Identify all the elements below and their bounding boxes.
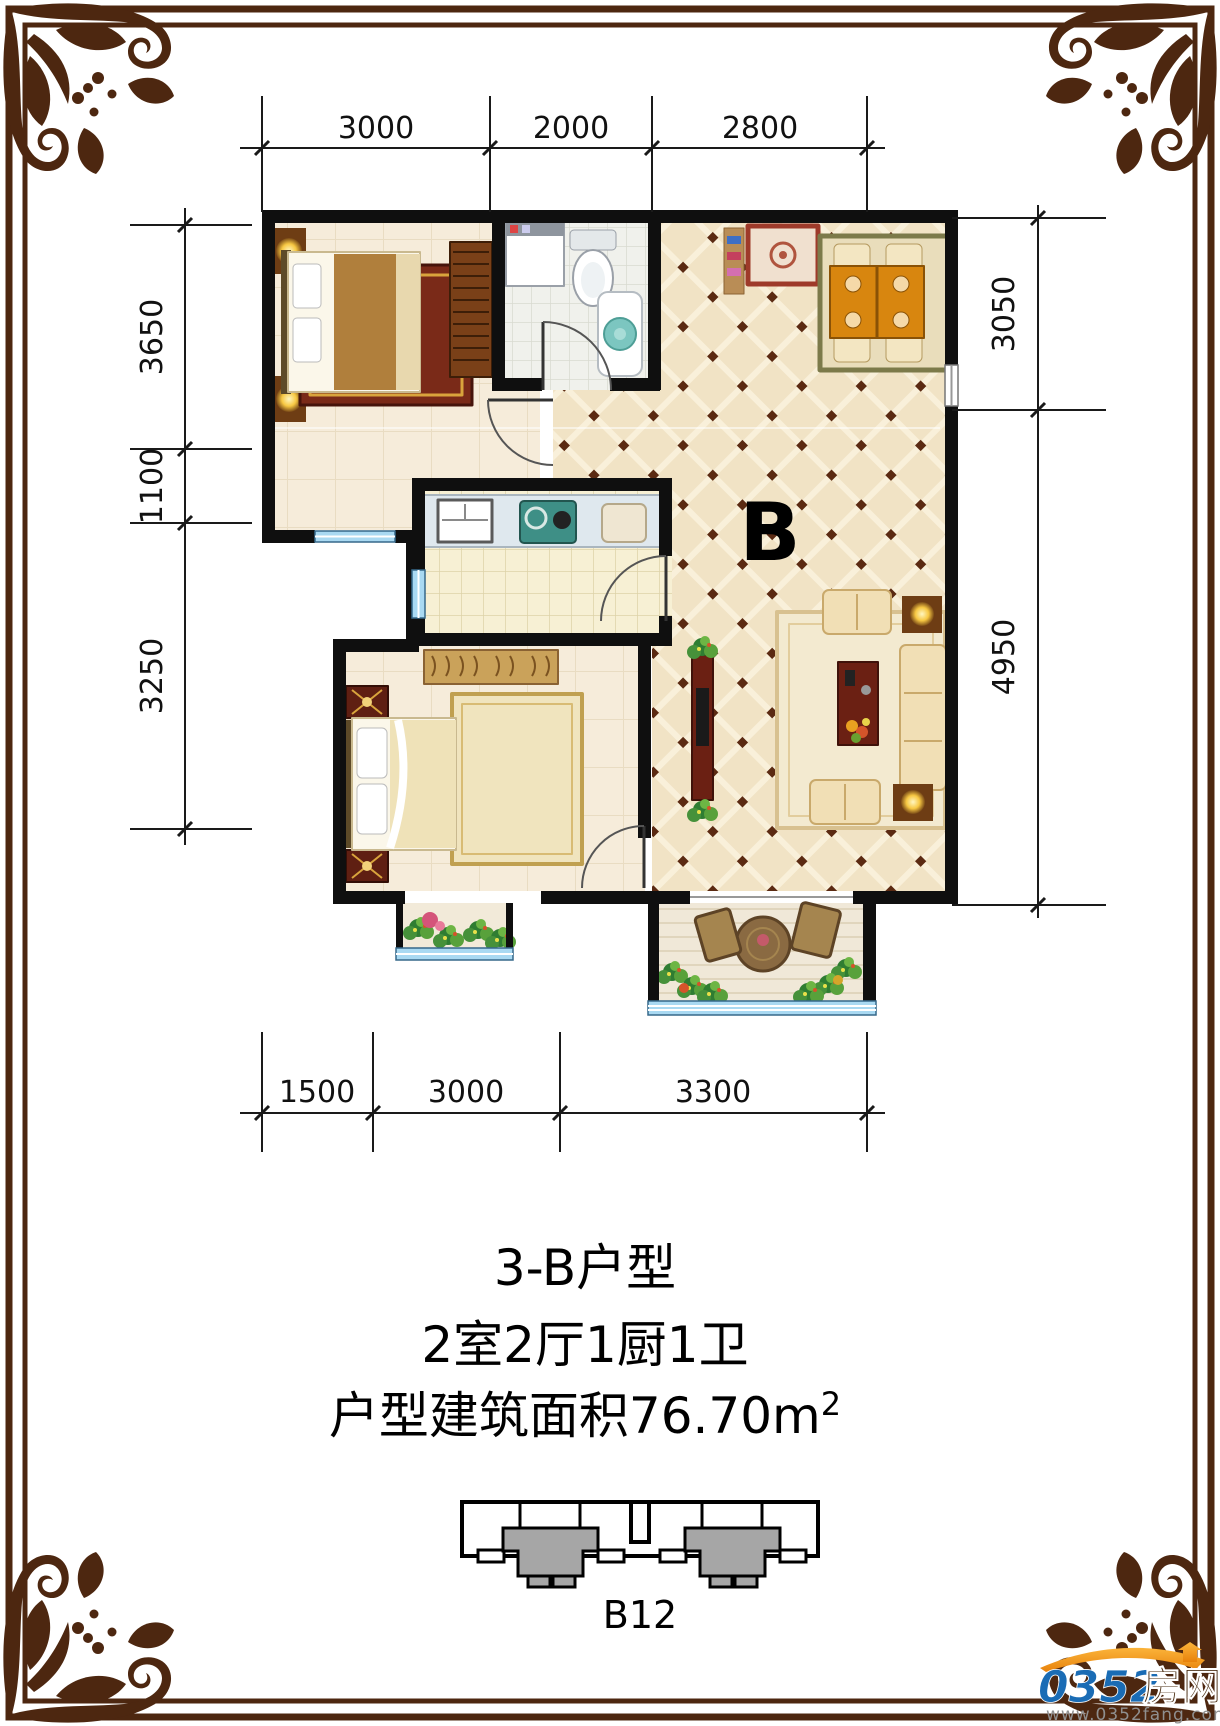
unit-type-title: 3-B户型: [494, 1239, 676, 1297]
dining-set: [820, 236, 948, 370]
bedroom2-bed: [344, 718, 456, 850]
bedroom1-bed: [281, 250, 420, 394]
logo-cn: 房网: [1142, 1664, 1220, 1710]
room-count-subtitle: 2室2厅1厨1卫: [421, 1316, 748, 1374]
dim-label: 2800: [722, 111, 798, 146]
dim-label: 3650: [135, 299, 170, 375]
title-block: 3-B户型 2室2厅1厨1卫 户型建筑面积76.70m2: [329, 1239, 841, 1445]
key-plan-label: B12: [603, 1593, 677, 1637]
bedroom2-rug: [452, 694, 582, 864]
corner-flourish-bottom-left: [3, 1552, 174, 1723]
site-logo: 0352 房网 www.0352fang.com: [1038, 1642, 1220, 1725]
bedroom1-wardrobe: [450, 242, 492, 377]
doormat-rug: [748, 226, 818, 284]
dining-window: [945, 365, 958, 406]
sofa-right: [900, 645, 946, 790]
coffee-table: [838, 662, 878, 745]
logo-url: www.0352fang.com: [1046, 1705, 1220, 1725]
balcony-window: [648, 1001, 876, 1015]
kitchen-window: [412, 570, 425, 618]
dim-label: 3000: [338, 111, 414, 146]
key-stair-notch: [631, 1502, 649, 1542]
tv-cabinet: [692, 655, 713, 800]
dim-label: 2000: [533, 111, 609, 146]
kitchen-counter: [424, 495, 660, 547]
floorplan-canvas: B 3000: [0, 0, 1220, 1726]
bedroom2-bench: [424, 650, 558, 684]
corridor-floor: [553, 390, 672, 478]
flower-bay-window: [396, 948, 513, 960]
corner-flourish-top-right: [1046, 3, 1217, 174]
dim-right: [952, 205, 1106, 918]
dim-label: 1500: [279, 1075, 355, 1110]
dim-label: 3000: [428, 1075, 504, 1110]
cutting-board: [602, 504, 646, 542]
area-text: 户型建筑面积76.70m2: [329, 1385, 841, 1445]
building-key-plan: B12: [462, 1502, 818, 1637]
shoe-rack: [724, 228, 744, 294]
floorplan-sheet: B 3000: [0, 0, 1220, 1726]
washing-machine: [506, 222, 564, 286]
bathroom-vanity: [598, 292, 642, 376]
bedroom1-window: [315, 531, 395, 542]
dim-label: 3250: [135, 638, 170, 714]
dim-label: 1100: [135, 448, 170, 524]
dim-label: 4950: [987, 619, 1022, 695]
dim-label: 3050: [987, 276, 1022, 352]
corner-flourish-top-left: [3, 3, 174, 174]
unit-letter: B: [740, 486, 801, 579]
dim-label: 3300: [675, 1075, 751, 1110]
